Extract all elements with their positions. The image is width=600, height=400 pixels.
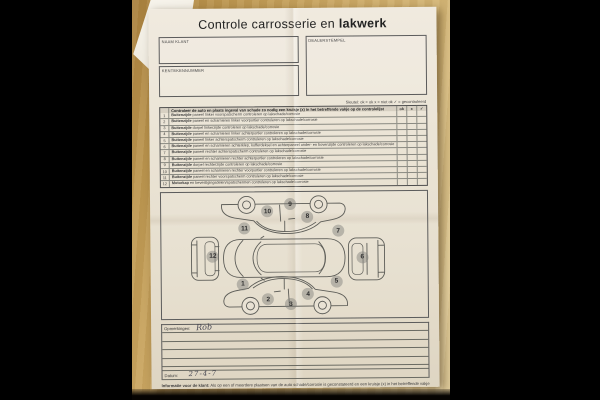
check-cell [406,111,416,116]
photo-of-document: Controle carrosserie en lakwerk NAAM KLA… [132,0,450,400]
check-cell [417,154,427,159]
check-cell [416,111,426,116]
check-cell [396,130,406,135]
car-top-view [223,235,345,280]
check-cell [407,148,417,153]
remarks-handwriting: Rob [196,322,212,332]
row-description: Motorkap en bevestigingsdelen/spatscherm… [170,180,397,187]
check-cell [397,173,407,178]
ruled-line [162,356,428,367]
check-cell [397,161,407,166]
dealer-stamp-field: DEALERSTEMPEL [305,35,427,96]
row-number: 5 [160,138,169,143]
row-number: 3 [160,126,169,131]
check-cell [397,148,407,153]
checklist-rows: 1Buitenzijde paneel linker voorspatscher… [160,111,427,187]
check-cell [417,167,427,172]
check-cell [407,173,417,178]
customer-info-paragraph: Informatie voor de klant: Als op een of … [162,380,430,389]
check-cell [417,179,427,184]
row-number: 10 [161,169,170,174]
check-cell [396,111,406,116]
damage-marker: 5 [330,275,342,287]
damage-marker: 1 [237,278,249,290]
row-number: 2 [160,119,169,124]
check-cell [396,124,406,129]
remarks-section: Opmerkingen: Rob Datum: 27-4-7 [161,321,429,379]
check-cell [397,155,407,160]
date-line: Datum: 27-4-7 [162,368,428,380]
check-cell [397,179,407,184]
form-title-bold: lakwerk [339,16,387,30]
check-cell [416,136,426,141]
checklist-table: Controleer de auto en plaats ingeval van… [159,105,428,188]
check-cell [416,117,426,122]
check-cell [407,155,417,160]
license-plate-label: KENTEKENNUMMER [162,68,204,73]
check-cell [416,123,426,128]
row-number: 11 [161,175,170,180]
row-number: 7 [161,151,170,156]
check-cell [406,117,416,122]
damage-marker: 6 [356,251,368,263]
check-cell [397,167,407,172]
check-cell [417,173,427,178]
dealer-stamp-label: DEALERSTEMPEL [308,38,345,43]
form-title-regular: Controle carrosserie en [198,17,339,32]
check-cell [407,161,417,166]
damage-marker: 3 [285,298,297,310]
header-fields: NAAM KLANT KENTEKENNUMMER DEALERSTEMPEL [159,35,428,97]
check-cell [407,179,417,184]
form-title: Controle carrosserie en lakwerk [158,16,426,32]
date-handwriting: 27-4-7 [188,370,217,379]
check-cell [416,130,426,135]
row-number: 1 [160,113,169,118]
check-cell [406,124,416,129]
date-label: Datum: [165,373,179,378]
check-cell [397,142,407,147]
check-cell [406,136,416,141]
damage-marker: 12 [207,250,219,262]
license-plate-field: KENTEKENNUMMER [159,65,299,97]
dealer-field-col: DEALERSTEMPEL [305,35,427,96]
row-number: 4 [160,132,169,137]
check-cell [396,117,406,122]
inspection-form: Controle carrosserie en lakwerk NAAM KLA… [148,7,439,389]
check-cell [417,142,427,147]
check-cell [407,167,417,172]
row-number: 12 [161,182,170,187]
row-number: 8 [161,157,170,162]
table-edge-shadow [132,389,450,400]
check-cell [396,136,406,141]
check-cell [417,148,427,153]
customer-fields: NAAM KLANT KENTEKENNUMMER [159,36,299,97]
check-cell [406,130,416,135]
car-damage-diagram: 910811712615423 [160,189,429,319]
customer-name-label: NAAM KLANT [162,39,190,44]
check-cell [417,161,427,166]
check-cell [407,142,417,147]
screenshot-canvas: Controle carrosserie en lakwerk NAAM KLA… [0,0,600,400]
row-number: 6 [161,144,170,149]
customer-name-field: NAAM KLANT [159,36,299,64]
row-number: 9 [161,163,170,168]
remarks-label: Opmerkingen: [164,326,190,331]
